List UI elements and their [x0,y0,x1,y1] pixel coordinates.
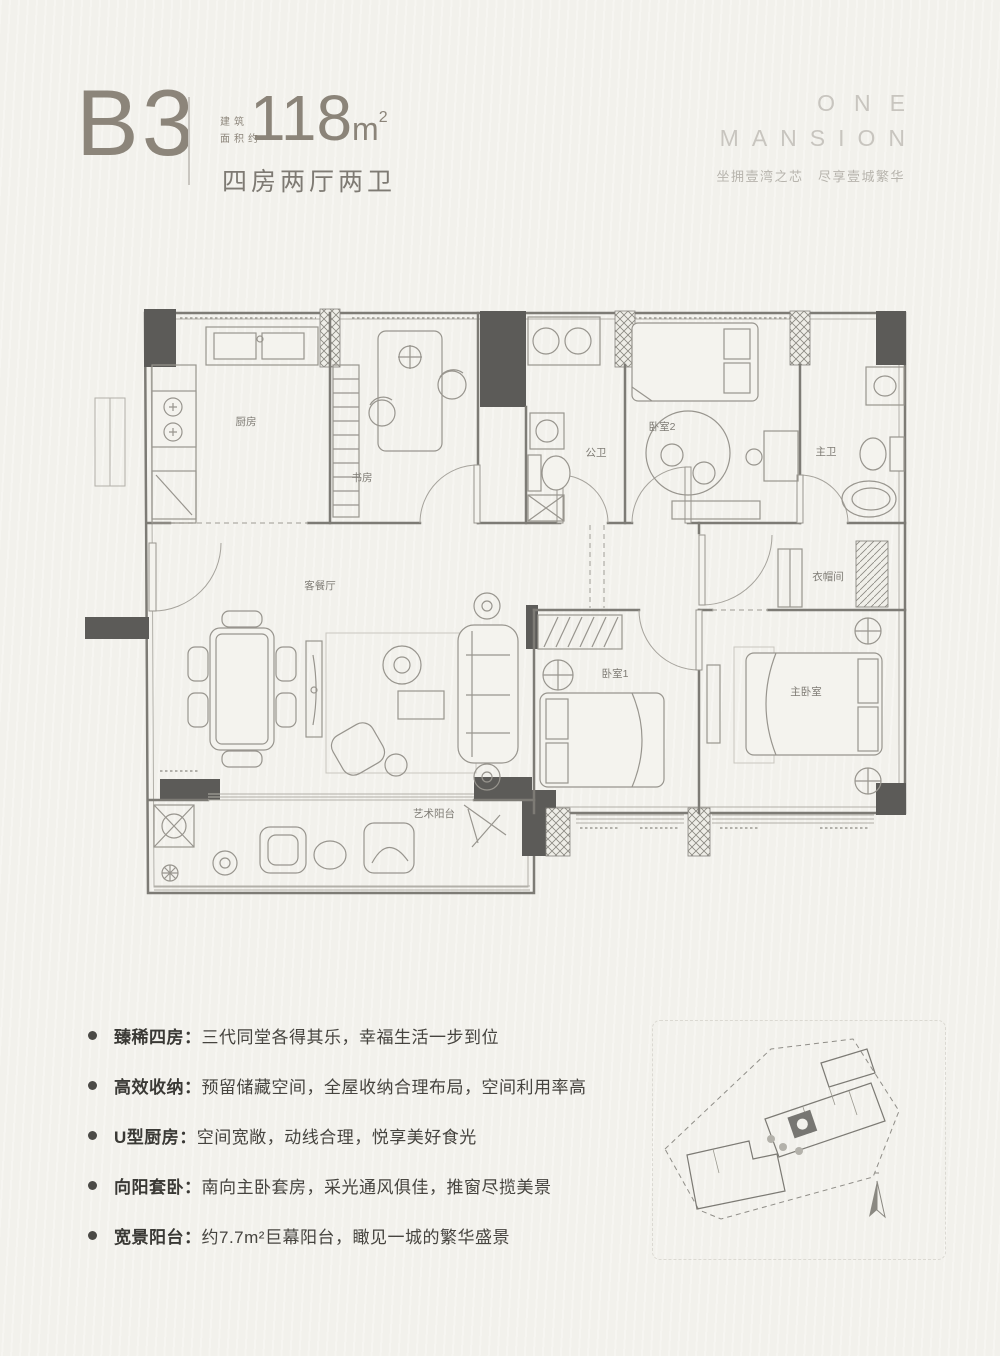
sofa [458,593,518,790]
study-desk [378,331,442,451]
key-plan-drawing [653,1021,945,1259]
study-door [420,465,480,523]
study-chair [369,370,466,426]
bullet-dot-icon [88,1231,97,1240]
feature-list: 臻稀四房： 三代同堂各得其乐，幸福生活一步到位 高效收纳： 预留储藏空间，全屋收… [88,1022,587,1249]
north-arrow-icon [869,1173,885,1217]
bed-bedroom2 [632,323,758,401]
room-label-bedroom2: 卧室2 [649,420,676,433]
hallway-door [699,535,772,605]
brand-line1: ONE [716,90,924,117]
feature-title: 宽景阳台： [114,1223,202,1248]
feature-desc: 三代同堂各得其乐，幸福生活一步到位 [202,1023,500,1048]
tv-cabinet-master [707,665,720,743]
feature-row: 向阳套卧： 南向主卧套房，采光通风俱佳，推窗尽揽美景 [88,1172,587,1199]
kitchen-sink [206,327,318,365]
building-bar-block [765,1049,885,1157]
feature-title: U型厨房： [114,1123,197,1148]
bed-master [746,653,882,755]
master-bath-door [797,475,848,523]
balcony-plant [213,851,237,875]
dining-table [188,611,296,767]
toilet-master [860,437,904,471]
floor-plan: 厨房 书房 公卫 卧室2 主卫 客餐厅 卧室1 主卧室 衣帽间 艺术阳台 [20,303,920,913]
balcony-chair1 [260,827,306,873]
area-block: 建筑 面积约 118m2 四房两厅两卫 [220,94,480,194]
room-label-cloakroom: 衣帽间 [812,570,844,583]
kitchen-stove [152,391,196,447]
sink-master-bath [866,367,904,405]
feature-desc: 约7.7m²巨幕阳台，瞰见一城的繁华盛景 [202,1223,510,1248]
area-unit: m [352,111,379,147]
wardrobe-bedroom1 [538,615,622,649]
feature-title: 高效收纳： [114,1073,202,1098]
washing-machine [154,805,194,847]
easel [464,805,506,847]
entry-door [149,543,221,611]
laundry-closet [528,317,600,365]
area-unit-sup: 2 [379,109,388,126]
room-label-master-bedroom: 主卧室 [790,685,822,698]
balcony-pouf [314,841,346,869]
kitchen-cabinet [152,471,196,519]
bullet-dot-icon [88,1181,97,1190]
toilet-public [528,455,570,491]
room-label-kitchen: 厨房 [236,415,257,428]
area-value: 118m2 [250,86,388,150]
room-label-art-balcony: 艺术阳台 [413,807,455,820]
page: B3 建筑 面积约 118m2 四房两厅两卫 ONE MANSION 坐拥壹湾之… [0,0,1000,1356]
room-label-living-dining: 客餐厅 [304,579,336,592]
feature-desc: 空间宽敞，动线合理，悦享美好食光 [197,1123,477,1148]
brand-line2: MANSION [716,125,918,152]
feature-row: U型厨房： 空间宽敞，动线合理，悦享美好食光 [88,1122,587,1149]
bathtub [842,481,896,517]
layout-text: 四房两厅两卫 [222,162,396,198]
bed-bedroom1 [540,693,664,787]
room-label-bedroom1: 卧室1 [602,667,629,680]
bullet-dot-icon [88,1031,97,1040]
tv-console [306,641,322,737]
bullet-dot-icon [88,1131,97,1140]
floor-plan-drawing: 厨房 书房 公卫 卧室2 主卫 客餐厅 卧室1 主卧室 衣帽间 艺术阳台 [20,303,920,913]
feature-desc: 预留储藏空间，全屋收纳合理布局，空间利用率高 [202,1073,587,1098]
unit-code: B3 [76,76,197,170]
brand-tagline: 坐拥壹湾之芯 尽享壹城繁华 [716,166,905,185]
armchair [327,718,389,779]
room-label-study: 书房 [352,471,373,484]
room-label-master-bath: 主卫 [816,446,837,458]
study-bookshelf [333,365,359,517]
balcony-chair2 [364,823,414,873]
bedroom1-door [639,610,702,670]
feature-desc: 南向主卧套房，采光通风俱佳，推窗尽揽美景 [202,1173,552,1198]
ceiling-fan-bedroom1 [543,660,573,690]
feature-row: 臻稀四房： 三代同堂各得其乐，幸福生活一步到位 [88,1022,587,1049]
site-key-plan [652,1020,946,1260]
room-label-public-bath: 公卫 [586,447,607,459]
feature-row: 高效收纳： 预留储藏空间，全屋收纳合理布局，空间利用率高 [88,1072,587,1099]
feature-title: 臻稀四房： [114,1023,202,1048]
bathroom-cabinet [530,413,564,449]
dresser-bedroom2 [746,431,798,481]
feature-row: 宽景阳台： 约7.7m²巨幕阳台，瞰见一城的繁华盛景 [88,1222,587,1249]
bullet-dot-icon [88,1081,97,1090]
brand-logo: ONE MANSION 坐拥壹湾之芯 尽享壹城繁华 [716,90,905,185]
header-divider [188,97,190,185]
building-l-block [687,1141,785,1209]
site-trees [767,1135,803,1155]
coffee-table [383,646,444,719]
floor-drain [162,865,178,881]
feature-title: 向阳套卧： [114,1173,202,1198]
living-rug [326,633,476,773]
highlighted-unit [787,1110,817,1139]
